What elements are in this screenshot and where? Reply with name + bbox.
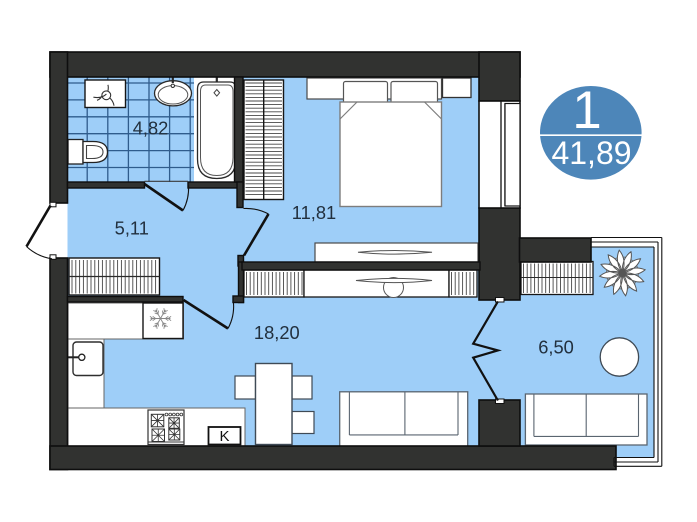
svg-text:5,11: 5,11 — [115, 218, 149, 239]
svg-text:11,81: 11,81 — [292, 202, 336, 223]
svg-text:K: K — [219, 428, 229, 445]
svg-text:18,20: 18,20 — [254, 322, 300, 343]
svg-text:1: 1 — [572, 81, 601, 140]
svg-text:6,50: 6,50 — [538, 336, 574, 357]
svg-text:41,89: 41,89 — [551, 135, 631, 171]
svg-text:4,82: 4,82 — [133, 117, 169, 138]
